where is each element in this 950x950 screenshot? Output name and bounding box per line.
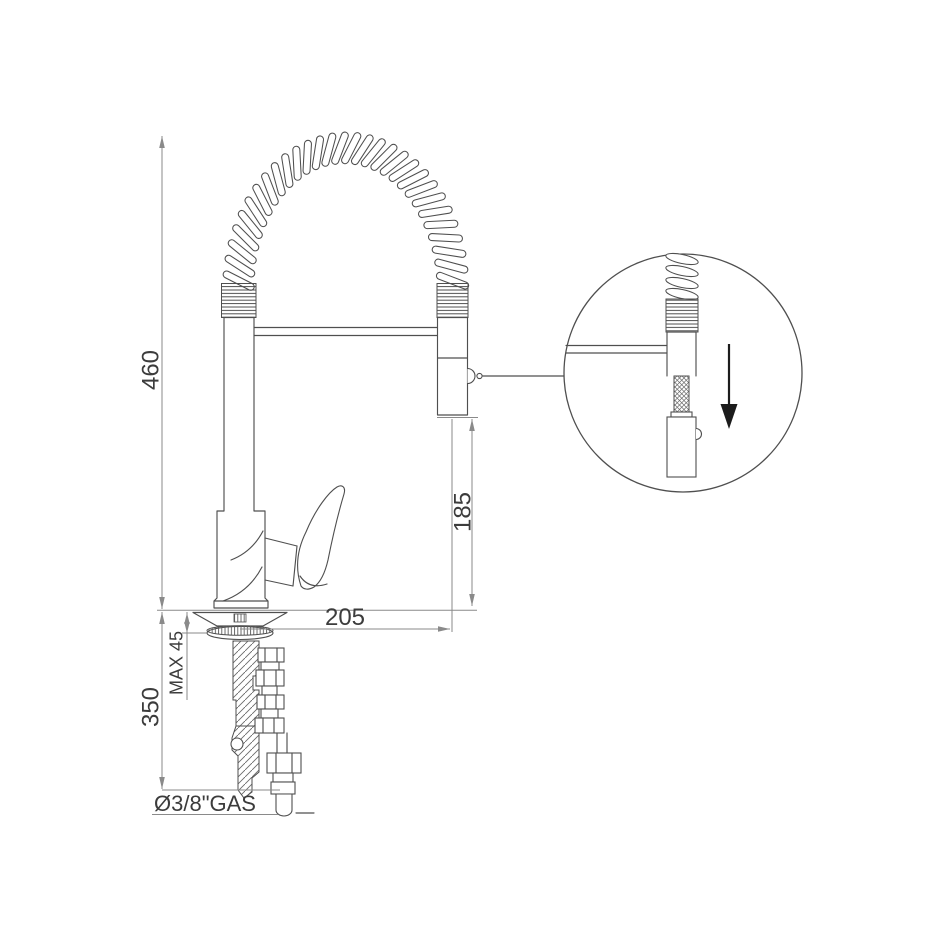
spring-spout — [222, 131, 476, 511]
spray-head-column — [438, 318, 468, 416]
cartridge — [265, 538, 297, 586]
shank-notch — [231, 738, 243, 750]
body-seam-lower — [223, 567, 262, 601]
dim-label-spout-clearance: 185 — [449, 492, 476, 532]
faucet-technical-drawing: 460 185 205 MAX 45 350 Ø3/8"GAS — [0, 0, 950, 950]
detail-braided-hose — [674, 376, 689, 412]
body-outline — [214, 511, 268, 608]
detail-hose-collar — [671, 412, 692, 417]
faucet-body — [193, 486, 345, 640]
dim-label-under-depth: 350 — [137, 687, 164, 727]
hose-end-fitting — [276, 794, 292, 816]
lever-handle — [298, 486, 345, 589]
supply-hose — [267, 733, 314, 816]
threaded-shank-upper — [233, 641, 259, 726]
spring-arch-coil — [222, 131, 470, 291]
mounting-washer-knurl — [207, 626, 273, 636]
detail-view — [477, 251, 802, 492]
technical-drawing-page: 460 185 205 MAX 45 350 Ø3/8"GAS — [0, 0, 950, 950]
dim-label-supply-connection: Ø3/8"GAS — [154, 791, 256, 816]
riser-column — [224, 318, 254, 512]
dim-label-max-deck: MAX 45 — [166, 631, 186, 695]
spray-release-button — [468, 369, 476, 384]
deck-plate-hub — [234, 614, 246, 622]
dimensions: 460 185 205 MAX 45 350 Ø3/8"GAS — [137, 136, 478, 816]
main-view — [193, 131, 475, 816]
threaded-shank-lower — [232, 726, 259, 798]
dim-label-total-height: 460 — [137, 350, 164, 390]
body-seam-upper — [231, 531, 263, 560]
leader-dot — [477, 373, 482, 378]
spring-tight-coil-left — [222, 284, 257, 318]
detail-tight-coil — [666, 299, 698, 332]
detail-spray-head — [667, 417, 696, 477]
spout-tube-bar — [254, 328, 438, 336]
spring-tight-coil-right — [437, 284, 468, 318]
dim-label-spout-reach: 205 — [325, 604, 365, 631]
